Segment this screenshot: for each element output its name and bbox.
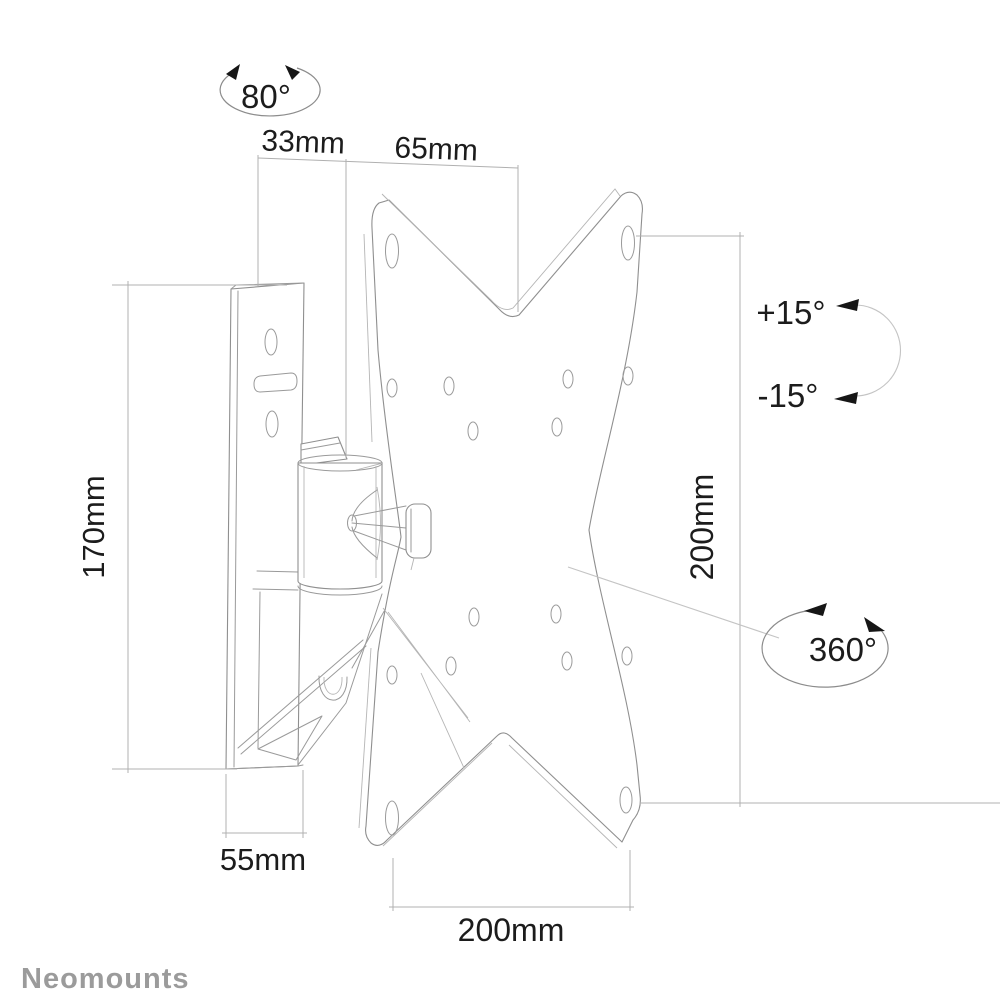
rotation-arrow-left <box>804 603 827 616</box>
tilt-down-label: -15° <box>758 377 819 414</box>
tilt-up-label: +15° <box>756 294 825 331</box>
dimension-55: 55mm <box>220 770 307 877</box>
dim-200mm-bottom-label: 200mm <box>458 912 565 948</box>
swivel-arrow-left <box>226 64 240 80</box>
dim-33mm-label: 33mm <box>261 124 346 160</box>
pivot-arm <box>301 437 347 465</box>
rotation-label: 360° <box>809 631 877 668</box>
tilt-arrow-up <box>836 299 859 311</box>
wall-mount-diagram: 33mm 65mm 80° 170mm 55mm 200mm 200mm +15 <box>0 0 1004 1004</box>
tilt-arrow-down <box>834 392 858 404</box>
rotation-arrow-right <box>864 617 885 632</box>
tilt-indicator: +15° -15° <box>756 294 900 414</box>
vesa-hole <box>623 367 633 385</box>
brand-logo: Neomounts <box>21 963 190 995</box>
dim-200mm-right-label: 200mm <box>684 474 720 581</box>
technical-drawing-page: 33mm 65mm 80° 170mm 55mm 200mm 200mm +15 <box>0 0 1004 1004</box>
pivot-cylinder <box>298 455 382 700</box>
pivot-clamp <box>319 676 347 700</box>
dim-170mm-label: 170mm <box>76 475 111 578</box>
swivel-indicator: 80° <box>220 64 320 116</box>
vesa-plate <box>359 189 642 848</box>
dim-65mm-label: 65mm <box>394 131 479 167</box>
vesa-hole <box>622 647 632 665</box>
dim-55mm-label: 55mm <box>220 842 306 877</box>
dimension-200-bottom: 200mm <box>389 850 634 948</box>
wall-plate <box>226 283 304 769</box>
swivel-angle-label: 80° <box>241 78 291 115</box>
